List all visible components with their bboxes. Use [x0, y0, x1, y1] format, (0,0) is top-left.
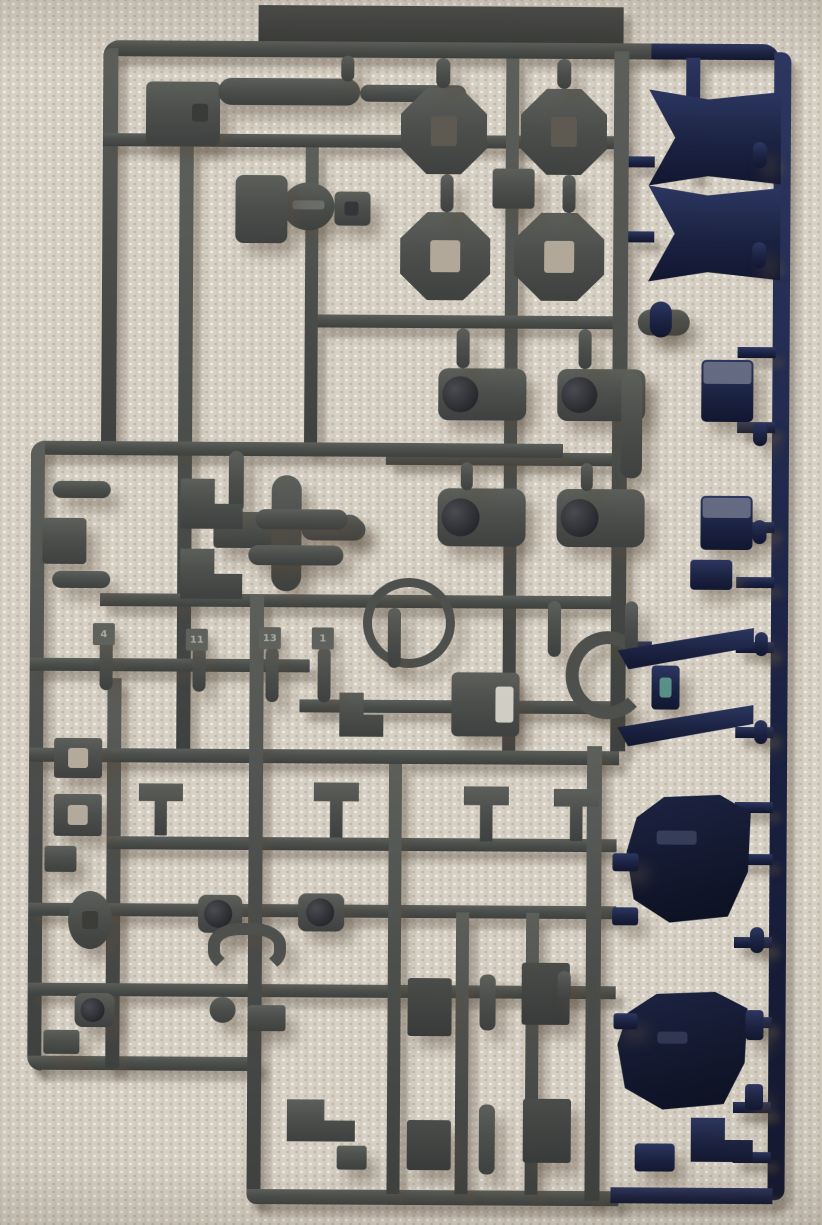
capsule-part [229, 451, 244, 513]
sprue-pin [754, 720, 767, 744]
bar-part [479, 1104, 495, 1174]
small-bracket-part [334, 192, 370, 226]
round-joint-part-boss [80, 998, 104, 1022]
thigh-part-highlight [703, 498, 751, 518]
sprue-pin [265, 647, 278, 702]
box-part [247, 1005, 285, 1031]
sprue-pin [341, 56, 354, 82]
disc-joint-part-highlight [292, 200, 324, 209]
octagon-ring-part-hole [431, 116, 457, 146]
sprue-pin [562, 175, 575, 213]
top-rail [103, 40, 663, 59]
joint-part-boss [441, 498, 479, 536]
connector-part-highlight [659, 678, 671, 698]
mid-cross-rail-a [318, 314, 618, 329]
blue-branch [738, 347, 776, 358]
box-part [523, 1099, 571, 1163]
rifle-grip-block-hole [192, 104, 208, 122]
wing-part [618, 627, 754, 670]
small-part [43, 1030, 79, 1054]
sprue-pin [752, 520, 766, 544]
barrel-part [218, 78, 360, 106]
blue-branch [736, 577, 774, 588]
sprue-pin [548, 601, 561, 657]
left-frame-top-rail [31, 441, 563, 458]
sprue-pin [752, 242, 766, 268]
bracket-part [691, 1118, 753, 1162]
square-ring-part-hole [68, 805, 88, 825]
blue-stub-part [612, 853, 638, 871]
box-part [42, 518, 86, 564]
octagon-ring-part-hole [430, 240, 460, 272]
blue-stub [629, 156, 655, 167]
left-frame-bottom-rail [27, 1056, 259, 1071]
cylinder-part [650, 301, 672, 337]
bracket-part [287, 1099, 355, 1141]
disc-bracket-part [235, 175, 287, 243]
small-part [745, 1084, 763, 1110]
small-part [690, 560, 732, 590]
thigh-part [700, 496, 752, 550]
sprue-pin [753, 142, 767, 168]
joint-part [438, 368, 526, 421]
part-number-tag: 13 [259, 627, 281, 649]
wing-part [617, 704, 753, 747]
oblong-part [621, 373, 643, 478]
egg-part-hole [82, 911, 98, 929]
sprue-pin [557, 59, 571, 89]
sprue-pin [755, 632, 768, 656]
sprue-pin [440, 174, 453, 212]
tee-part [464, 786, 509, 841]
joint-part [556, 489, 644, 548]
rifle-grip-block [146, 81, 220, 145]
joint-part [437, 488, 525, 547]
rod-part [256, 509, 348, 530]
blue-bottom-rail [610, 1187, 772, 1204]
round-joint-part [74, 993, 114, 1027]
large-ring-part [363, 578, 456, 669]
bottom-vertical-a [386, 764, 402, 1194]
tee-part [139, 783, 183, 835]
small-bracket-part-hole [344, 202, 358, 216]
sprue-pin [193, 644, 206, 692]
octagon-ring-part-hole [551, 117, 577, 147]
round-joint-part [298, 893, 344, 931]
cylinder-part [53, 481, 111, 498]
thigh-part-highlight [703, 362, 751, 384]
octagon-ring-part-hole [544, 241, 574, 273]
blue-stub-part [613, 1013, 637, 1029]
sprue-layer: 411131 [0, 0, 822, 1225]
bottom-vertical-b [454, 912, 469, 1194]
part-number-tag: 4 [93, 623, 115, 645]
part-number-tag: 1 [312, 627, 334, 649]
octagon-ring-part [521, 89, 608, 176]
u-frame-part [208, 923, 286, 975]
chest-part [617, 991, 748, 1110]
backpack-part [626, 794, 751, 923]
bottom-rail [246, 1189, 618, 1206]
joint-part-boss [561, 377, 597, 413]
sprue-pin [558, 971, 571, 1001]
small-part [337, 1146, 367, 1170]
right-vertical-lower [584, 746, 602, 1201]
square-ring-part-hole [68, 748, 88, 768]
sprue-pin [456, 328, 469, 368]
box-part [451, 672, 519, 736]
thigh-part [701, 360, 753, 422]
blue-top-rail [651, 43, 779, 60]
square-part [492, 168, 534, 208]
ball-part [209, 997, 235, 1023]
cross-rail-835 [107, 836, 617, 852]
sprue-pin [388, 608, 401, 668]
disc-joint-part [282, 182, 334, 230]
round-joint-part-boss [306, 898, 334, 926]
octagon-ring-part [514, 213, 605, 302]
bottom-left-vertical [246, 595, 264, 1203]
tee-part [314, 782, 359, 837]
square-ring-part [54, 738, 102, 778]
blue-stub-part [612, 907, 638, 925]
box-part [407, 1120, 451, 1170]
sprue-pin [625, 601, 638, 651]
box-part-highlight [495, 687, 513, 723]
rod-part [248, 545, 343, 566]
square-ring-part [54, 794, 102, 836]
chest-part-highlight [657, 1032, 687, 1044]
connector-part [651, 665, 679, 709]
small-part [745, 1010, 763, 1040]
l-bracket-part [180, 549, 242, 599]
blue-stub [628, 231, 654, 242]
top-gate-bar [258, 5, 623, 45]
sprue-photo: 411131 [0, 0, 822, 1225]
bar-part [479, 974, 495, 1030]
small-part [44, 846, 76, 872]
joint-part-boss [442, 376, 478, 412]
sprue-pin [317, 647, 330, 702]
octagon-ring-part [400, 212, 491, 301]
backpack-part-highlight [657, 831, 697, 845]
sprue-pin [578, 329, 591, 369]
part-number-tag: 11 [186, 629, 208, 651]
sprue-pin [100, 638, 113, 690]
sprue-pin [436, 58, 450, 88]
sprue-pin [750, 927, 764, 953]
sprue-pin [461, 462, 473, 490]
joint-part-boss [560, 499, 598, 537]
left-upper-vertical [101, 48, 118, 448]
sprue-pin [581, 463, 593, 491]
box-part [407, 978, 451, 1036]
cylinder-part [52, 571, 110, 588]
fork-part [649, 89, 782, 186]
sprue-pin [753, 422, 767, 446]
egg-part [68, 891, 112, 949]
small-part [635, 1143, 675, 1171]
skid-plate-part [271, 475, 302, 591]
